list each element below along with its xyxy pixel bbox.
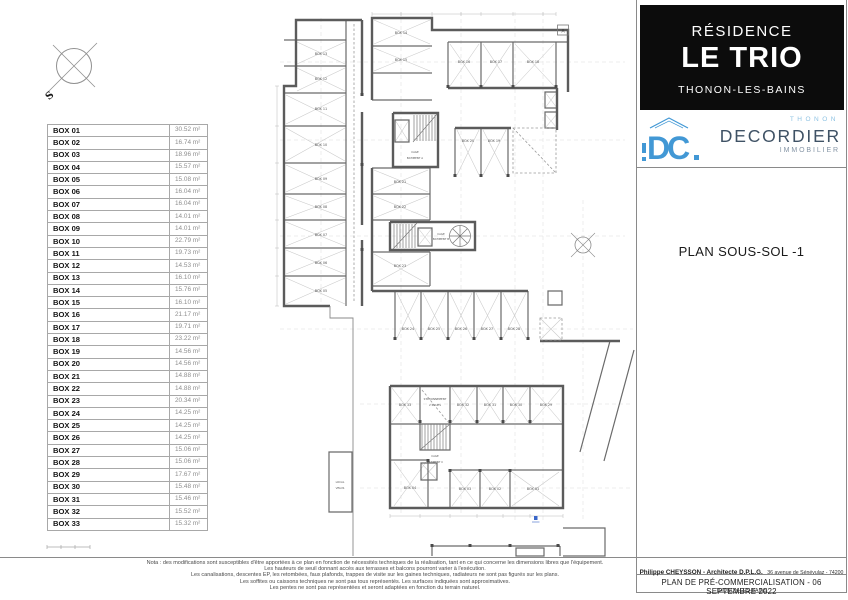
box-area-table: BOX 0130.52 m² BOX 0216.74 m² BOX 0318.9… bbox=[47, 124, 208, 531]
plan-box-label: BOX 17 bbox=[490, 60, 502, 64]
box-area: 15.57 m² bbox=[170, 161, 208, 173]
plan-box-label: BOX 11 bbox=[315, 107, 327, 111]
box-area: 16.10 m² bbox=[170, 272, 208, 284]
agency-logo: DC THONON DECORDIER IMMOBILIER bbox=[642, 113, 845, 166]
box-area: 14.01 m² bbox=[170, 223, 208, 235]
table-row: BOX 2114.88 m² bbox=[48, 370, 208, 382]
plan-box-label: BOX 05 bbox=[315, 289, 327, 293]
box-name: BOX 15 bbox=[48, 297, 170, 309]
box-name: BOX 28 bbox=[48, 457, 170, 469]
box-area: 15.32 m² bbox=[170, 518, 208, 530]
table-row: BOX 0716.04 m² bbox=[48, 198, 208, 210]
plan-box-label: BOX 10 bbox=[315, 143, 327, 147]
plan-labels: BOX 13 BOX 12 BOX 11 BOX 10 BOX 09 BOX 0… bbox=[315, 31, 552, 491]
plan-walls-light bbox=[284, 20, 634, 556]
box-name: BOX 08 bbox=[48, 211, 170, 223]
box-area: 14.56 m² bbox=[170, 346, 208, 358]
plan-box-label: BOX 12 bbox=[315, 77, 327, 81]
table-row: BOX 2214.88 m² bbox=[48, 383, 208, 395]
box-area: 14.56 m² bbox=[170, 358, 208, 370]
svg-text:DC: DC bbox=[647, 130, 690, 165]
table-row: BOX 1914.56 m² bbox=[48, 346, 208, 358]
box-area: 14.25 m² bbox=[170, 407, 208, 419]
box-name: BOX 07 bbox=[48, 198, 170, 210]
table-row: BOX 2014.56 m² bbox=[48, 358, 208, 370]
box-area: 16.04 m² bbox=[170, 186, 208, 198]
box-area: 15.06 m² bbox=[170, 444, 208, 456]
box-name: BOX 26 bbox=[48, 432, 170, 444]
secondary-compass-icon bbox=[571, 233, 595, 257]
table-row: BOX 2815.06 m² bbox=[48, 457, 208, 469]
plan-box-label: BOX 32 bbox=[457, 403, 469, 407]
table-row: BOX 2614.25 m² bbox=[48, 432, 208, 444]
project-name: LE TRIO bbox=[640, 42, 844, 75]
plan-box-label: BOX 28 bbox=[508, 327, 520, 331]
visitor-marker-icon bbox=[532, 516, 540, 522]
box-area: 19.73 m² bbox=[170, 247, 208, 259]
plan-notes: Nota : des modifications sont susceptibl… bbox=[120, 560, 630, 591]
table-row: BOX 3315.32 m² bbox=[48, 518, 208, 530]
box-area: 21.17 m² bbox=[170, 309, 208, 321]
table-row: BOX 3215.52 m² bbox=[48, 506, 208, 518]
table-row: BOX 2414.25 m² bbox=[48, 407, 208, 419]
box-name: BOX 01 bbox=[48, 125, 170, 137]
box-area: 19.71 m² bbox=[170, 321, 208, 333]
plan-box-label: BOX 06 bbox=[315, 261, 327, 265]
box-area: 16.10 m² bbox=[170, 297, 208, 309]
stairwell-label: CAGE bbox=[431, 454, 439, 458]
box-area: 14.01 m² bbox=[170, 211, 208, 223]
box-area: 15.52 m² bbox=[170, 506, 208, 518]
table-row: BOX 0415.57 m² bbox=[48, 161, 208, 173]
table-row: BOX 0616.04 m² bbox=[48, 186, 208, 198]
box-name: BOX 30 bbox=[48, 481, 170, 493]
box-name: BOX 04 bbox=[48, 161, 170, 173]
box-name: BOX 10 bbox=[48, 235, 170, 247]
logo-city-label: THONON bbox=[790, 116, 839, 123]
box-area: 30.52 m² bbox=[170, 125, 208, 137]
logo-suffix-label: IMMOBILIER bbox=[780, 147, 840, 154]
box-name: BOX 21 bbox=[48, 370, 170, 382]
plan-box-label: BOX 24 bbox=[402, 327, 414, 331]
box-area: 14.88 m² bbox=[170, 370, 208, 382]
plan-box-label: BOX 19 bbox=[488, 139, 500, 143]
compass-rose: S bbox=[44, 43, 97, 103]
table-row: BOX 2514.25 m² bbox=[48, 420, 208, 432]
plan-box-label: BOX 16 bbox=[458, 60, 470, 64]
box-name: BOX 27 bbox=[48, 444, 170, 456]
plan-box-label: BOX 20 bbox=[462, 139, 474, 143]
bike-parking-label: STATIONNEMENT bbox=[424, 397, 447, 401]
logo-brand-label: DECORDIER bbox=[720, 126, 841, 147]
plan-box-label: BOX 03 bbox=[459, 487, 471, 491]
box-area: 14.88 m² bbox=[170, 383, 208, 395]
plan-box-label: BOX 33 bbox=[399, 403, 411, 407]
box-name: BOX 09 bbox=[48, 223, 170, 235]
panel-divider bbox=[636, 0, 637, 592]
box-name: BOX 18 bbox=[48, 334, 170, 346]
box-name: BOX 29 bbox=[48, 469, 170, 481]
box-name: BOX 05 bbox=[48, 174, 170, 186]
stairwell-label: BATIMENT B bbox=[433, 237, 449, 241]
box-name: BOX 16 bbox=[48, 309, 170, 321]
table-row: BOX 1119.73 m² bbox=[48, 247, 208, 259]
stairwell-label: BATIMENT C bbox=[427, 460, 443, 464]
table-row: BOX 0216.74 m² bbox=[48, 137, 208, 149]
box-area: 15.76 m² bbox=[170, 284, 208, 296]
plan-box-label: BOX 31 bbox=[484, 403, 496, 407]
table-row: BOX 1214.53 m² bbox=[48, 260, 208, 272]
note-line: Les canalisations, descentes EP, les ret… bbox=[120, 572, 630, 578]
table-row: BOX 3015.48 m² bbox=[48, 481, 208, 493]
stairwell-label: CAGE bbox=[437, 232, 445, 236]
plan-box-label: BOX 14 bbox=[395, 31, 407, 35]
plan-box-label: BOX 23 bbox=[394, 264, 406, 268]
box-area: 16.04 m² bbox=[170, 198, 208, 210]
table-row: BOX 1415.76 m² bbox=[48, 284, 208, 296]
title-block: RÉSIDENCE LE TRIO THONON-LES-BAINS bbox=[640, 5, 844, 110]
box-name: BOX 03 bbox=[48, 149, 170, 161]
box-area: 20.34 m² bbox=[170, 395, 208, 407]
box-name: BOX 33 bbox=[48, 518, 170, 530]
stairwell-label: CAGE bbox=[411, 150, 419, 154]
box-area: 14.53 m² bbox=[170, 260, 208, 272]
box-area: 15.46 m² bbox=[170, 493, 208, 505]
box-name: BOX 02 bbox=[48, 137, 170, 149]
footer-top-rule bbox=[0, 557, 847, 558]
plan-box-label: BOX 27 bbox=[481, 327, 493, 331]
document-title: PLAN DE PRÉ-COMMERCIALISATION - 06 SEPTE… bbox=[637, 578, 846, 596]
table-row: BOX 0515.08 m² bbox=[48, 174, 208, 186]
plan-box-label: BOX 25 bbox=[428, 327, 440, 331]
box-name: BOX 06 bbox=[48, 186, 170, 198]
table-row: BOX 2917.67 m² bbox=[48, 469, 208, 481]
box-area: 23.22 m² bbox=[170, 334, 208, 346]
plan-box-label: BOX 21 bbox=[394, 180, 406, 184]
compass-south-label: S bbox=[44, 90, 57, 103]
box-name: BOX 32 bbox=[48, 506, 170, 518]
table-row: BOX 0914.01 m² bbox=[48, 223, 208, 235]
plan-box-label: BOX 15 bbox=[395, 58, 407, 62]
box-name: BOX 20 bbox=[48, 358, 170, 370]
table-row: BOX 1022.79 m² bbox=[48, 235, 208, 247]
box-area: 14.25 m² bbox=[170, 432, 208, 444]
table-row: BOX 3115.46 m² bbox=[48, 493, 208, 505]
plan-box-label: BOX 18 bbox=[527, 60, 539, 64]
plan-box-label: BOX 13 bbox=[315, 52, 327, 56]
box-area: 17.67 m² bbox=[170, 469, 208, 481]
table-row: BOX 1516.10 m² bbox=[48, 297, 208, 309]
box-name: BOX 11 bbox=[48, 247, 170, 259]
plan-box-label: BOX 01 bbox=[527, 487, 539, 491]
box-area: 22.79 m² bbox=[170, 235, 208, 247]
box-name: BOX 23 bbox=[48, 395, 170, 407]
bike-room-label: LOCAL bbox=[336, 480, 345, 484]
bike-parking-label: 2 ROUES bbox=[429, 403, 441, 407]
note-line: Les pentes ne sont pas représentées et s… bbox=[120, 585, 630, 591]
plan-title: PLAN SOUS-SOL -1 bbox=[636, 244, 847, 259]
box-name: BOX 12 bbox=[48, 260, 170, 272]
table-row: BOX 1316.10 m² bbox=[48, 272, 208, 284]
plan-site-boundary bbox=[330, 306, 353, 556]
plan-box-label: BOX 09 bbox=[315, 177, 327, 181]
plan-box-label: BOX 29 bbox=[540, 403, 552, 407]
table-row: BOX 1719.71 m² bbox=[48, 321, 208, 333]
decordier-monogram-icon: DC bbox=[642, 113, 708, 165]
residence-label: RÉSIDENCE bbox=[640, 23, 844, 40]
table-row: BOX 2320.34 m² bbox=[48, 395, 208, 407]
city-label: THONON-LES-BAINS bbox=[640, 84, 844, 96]
plan-box-label: BOX 22 bbox=[394, 205, 406, 209]
box-area: 15.08 m² bbox=[170, 174, 208, 186]
table-row: BOX 1823.22 m² bbox=[48, 334, 208, 346]
box-area: 18.96 m² bbox=[170, 149, 208, 161]
table-row: BOX 0130.52 m² bbox=[48, 125, 208, 137]
plan-box-label: BOX 08 bbox=[315, 205, 327, 209]
box-name: BOX 14 bbox=[48, 284, 170, 296]
table-row: BOX 2715.06 m² bbox=[48, 444, 208, 456]
plan-box-label: BOX 30 bbox=[510, 403, 522, 407]
bike-room-label: VELOS bbox=[336, 486, 345, 490]
box-area: 15.06 m² bbox=[170, 457, 208, 469]
box-name: BOX 17 bbox=[48, 321, 170, 333]
table-row: BOX 0814.01 m² bbox=[48, 211, 208, 223]
stairwell-label: BATIMENT A bbox=[407, 156, 423, 160]
architect-name: Philippe CHEYSSON - Architecte D.P.L.G. bbox=[640, 569, 763, 576]
plan-box-label: BOX 26 bbox=[455, 327, 467, 331]
plan-sheet: S A BOX 13 BOX 12 BOX 11 BOX 10 BOX 09 bbox=[0, 0, 848, 600]
box-name: BOX 31 bbox=[48, 493, 170, 505]
plan-box-label: BOX 07 bbox=[315, 233, 327, 237]
table-row: BOX 0318.96 m² bbox=[48, 149, 208, 161]
plan-walls-heavy bbox=[284, 18, 620, 508]
box-name: BOX 13 bbox=[48, 272, 170, 284]
box-area: 16.74 m² bbox=[170, 137, 208, 149]
panel-rule bbox=[636, 167, 847, 168]
box-name: BOX 19 bbox=[48, 346, 170, 358]
box-name: BOX 25 bbox=[48, 420, 170, 432]
box-name: BOX 24 bbox=[48, 407, 170, 419]
scale-bar bbox=[47, 545, 90, 549]
plan-box-label: BOX 02 bbox=[489, 487, 501, 491]
box-name: BOX 22 bbox=[48, 383, 170, 395]
box-area: 15.48 m² bbox=[170, 481, 208, 493]
sheet-right-border bbox=[846, 0, 847, 592]
box-area: 14.25 m² bbox=[170, 420, 208, 432]
plan-box-label: BOX 04 bbox=[404, 486, 416, 490]
table-row: BOX 1621.17 m² bbox=[48, 309, 208, 321]
